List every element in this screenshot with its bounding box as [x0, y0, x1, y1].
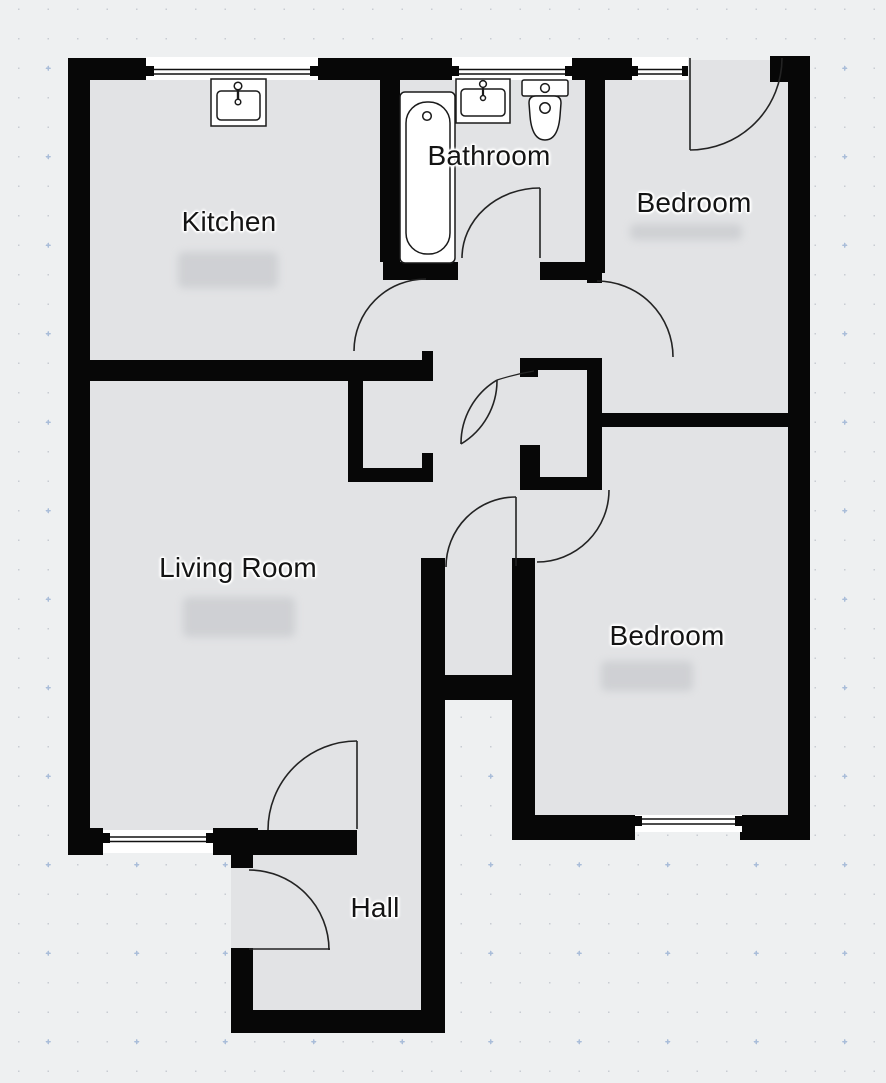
- room-label-hall: Hall: [350, 894, 399, 922]
- floorplan-canvas: Kitchen Bathroom Bedroom Living Room Bed…: [0, 0, 886, 1083]
- floor-entry-gap: [688, 60, 770, 82]
- sink-icon-bathroom: [456, 79, 510, 123]
- room-label-bedroom-bottom: Bedroom: [609, 622, 724, 650]
- floor-hall: [240, 845, 440, 1020]
- bathtub-icon: [400, 92, 455, 263]
- room-label-living-room: Living Room: [159, 554, 317, 582]
- room-label-kitchen: Kitchen: [182, 208, 277, 236]
- window-icon-bedroom-top: [632, 57, 688, 80]
- window-icon-bedroom-bottom: [635, 815, 742, 832]
- room-label-bedroom-top: Bedroom: [636, 189, 751, 217]
- floor-front-door-gap: [231, 868, 253, 948]
- window-icon-kitchen: [146, 57, 318, 80]
- floor-right-column: [515, 68, 788, 820]
- sink-icon-kitchen: [211, 79, 266, 126]
- window-icon-living-room: [103, 830, 213, 853]
- dimension-smudge: [601, 661, 693, 691]
- dimension-smudge: [178, 252, 278, 288]
- dimension-smudge: [183, 597, 295, 637]
- dimension-smudge: [630, 224, 742, 240]
- window-icon-bathroom: [452, 57, 572, 80]
- room-label-bathroom: Bathroom: [428, 142, 551, 170]
